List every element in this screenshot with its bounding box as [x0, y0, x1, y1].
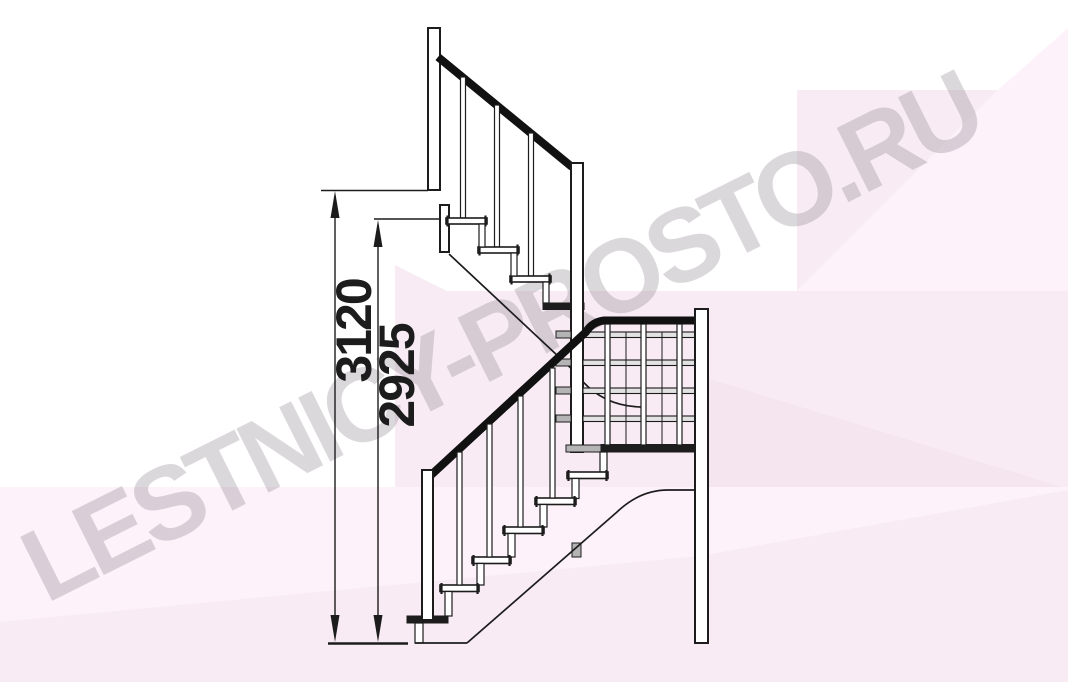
lower-step-leg — [572, 479, 579, 499]
winder-baluster — [677, 324, 682, 445]
winder-baluster — [605, 324, 610, 445]
upper-tread — [446, 218, 487, 224]
lower-step-leg — [477, 564, 484, 586]
lower-tread — [440, 585, 479, 592]
lower-tread — [567, 472, 608, 479]
dim-arrow-up — [374, 220, 383, 247]
lower-tread — [535, 498, 576, 505]
lower-baluster — [457, 452, 462, 585]
upper-baluster — [461, 77, 466, 218]
lower-step-leg — [508, 534, 515, 558]
dim-arrow-up — [331, 191, 340, 218]
right-newel-post — [695, 309, 708, 643]
upper-tread — [510, 276, 551, 282]
lower-step-leg — [445, 592, 452, 617]
winder-tread-nose — [556, 415, 571, 422]
winder-baluster — [641, 324, 646, 445]
upper-step-leg — [511, 253, 517, 276]
dim-label-2925: 2925 — [369, 323, 425, 427]
upper-baluster — [495, 105, 500, 247]
lower-baluster — [550, 368, 555, 498]
lower-baluster — [518, 396, 523, 527]
landing-platform — [601, 445, 696, 453]
lower-step-leg — [600, 452, 607, 472]
top-newel-post — [428, 28, 440, 190]
winder-tread-nose — [556, 387, 571, 394]
upper-tread — [478, 247, 519, 253]
staircase-technical-drawing: LESTNICY-PROSTO.RU — [0, 0, 1068, 682]
upper-baluster — [529, 133, 534, 276]
upper-handrail — [438, 57, 572, 167]
lower-baluster — [487, 424, 492, 557]
lower-tread — [503, 527, 544, 534]
upper-step-leg — [479, 224, 485, 247]
lower-step-leg — [540, 505, 547, 528]
winder-tread-nose — [556, 331, 571, 338]
lower-tread — [472, 557, 511, 564]
top-mount-bracket — [440, 205, 449, 252]
bottom-newel-post — [422, 470, 433, 620]
upper-step-leg — [543, 282, 549, 303]
landing-platform-nose — [566, 445, 602, 452]
middle-newel-post — [571, 163, 583, 452]
drawing-canvas: LESTNICY-PROSTO.RU — [0, 0, 1068, 682]
base-leg — [415, 623, 423, 643]
